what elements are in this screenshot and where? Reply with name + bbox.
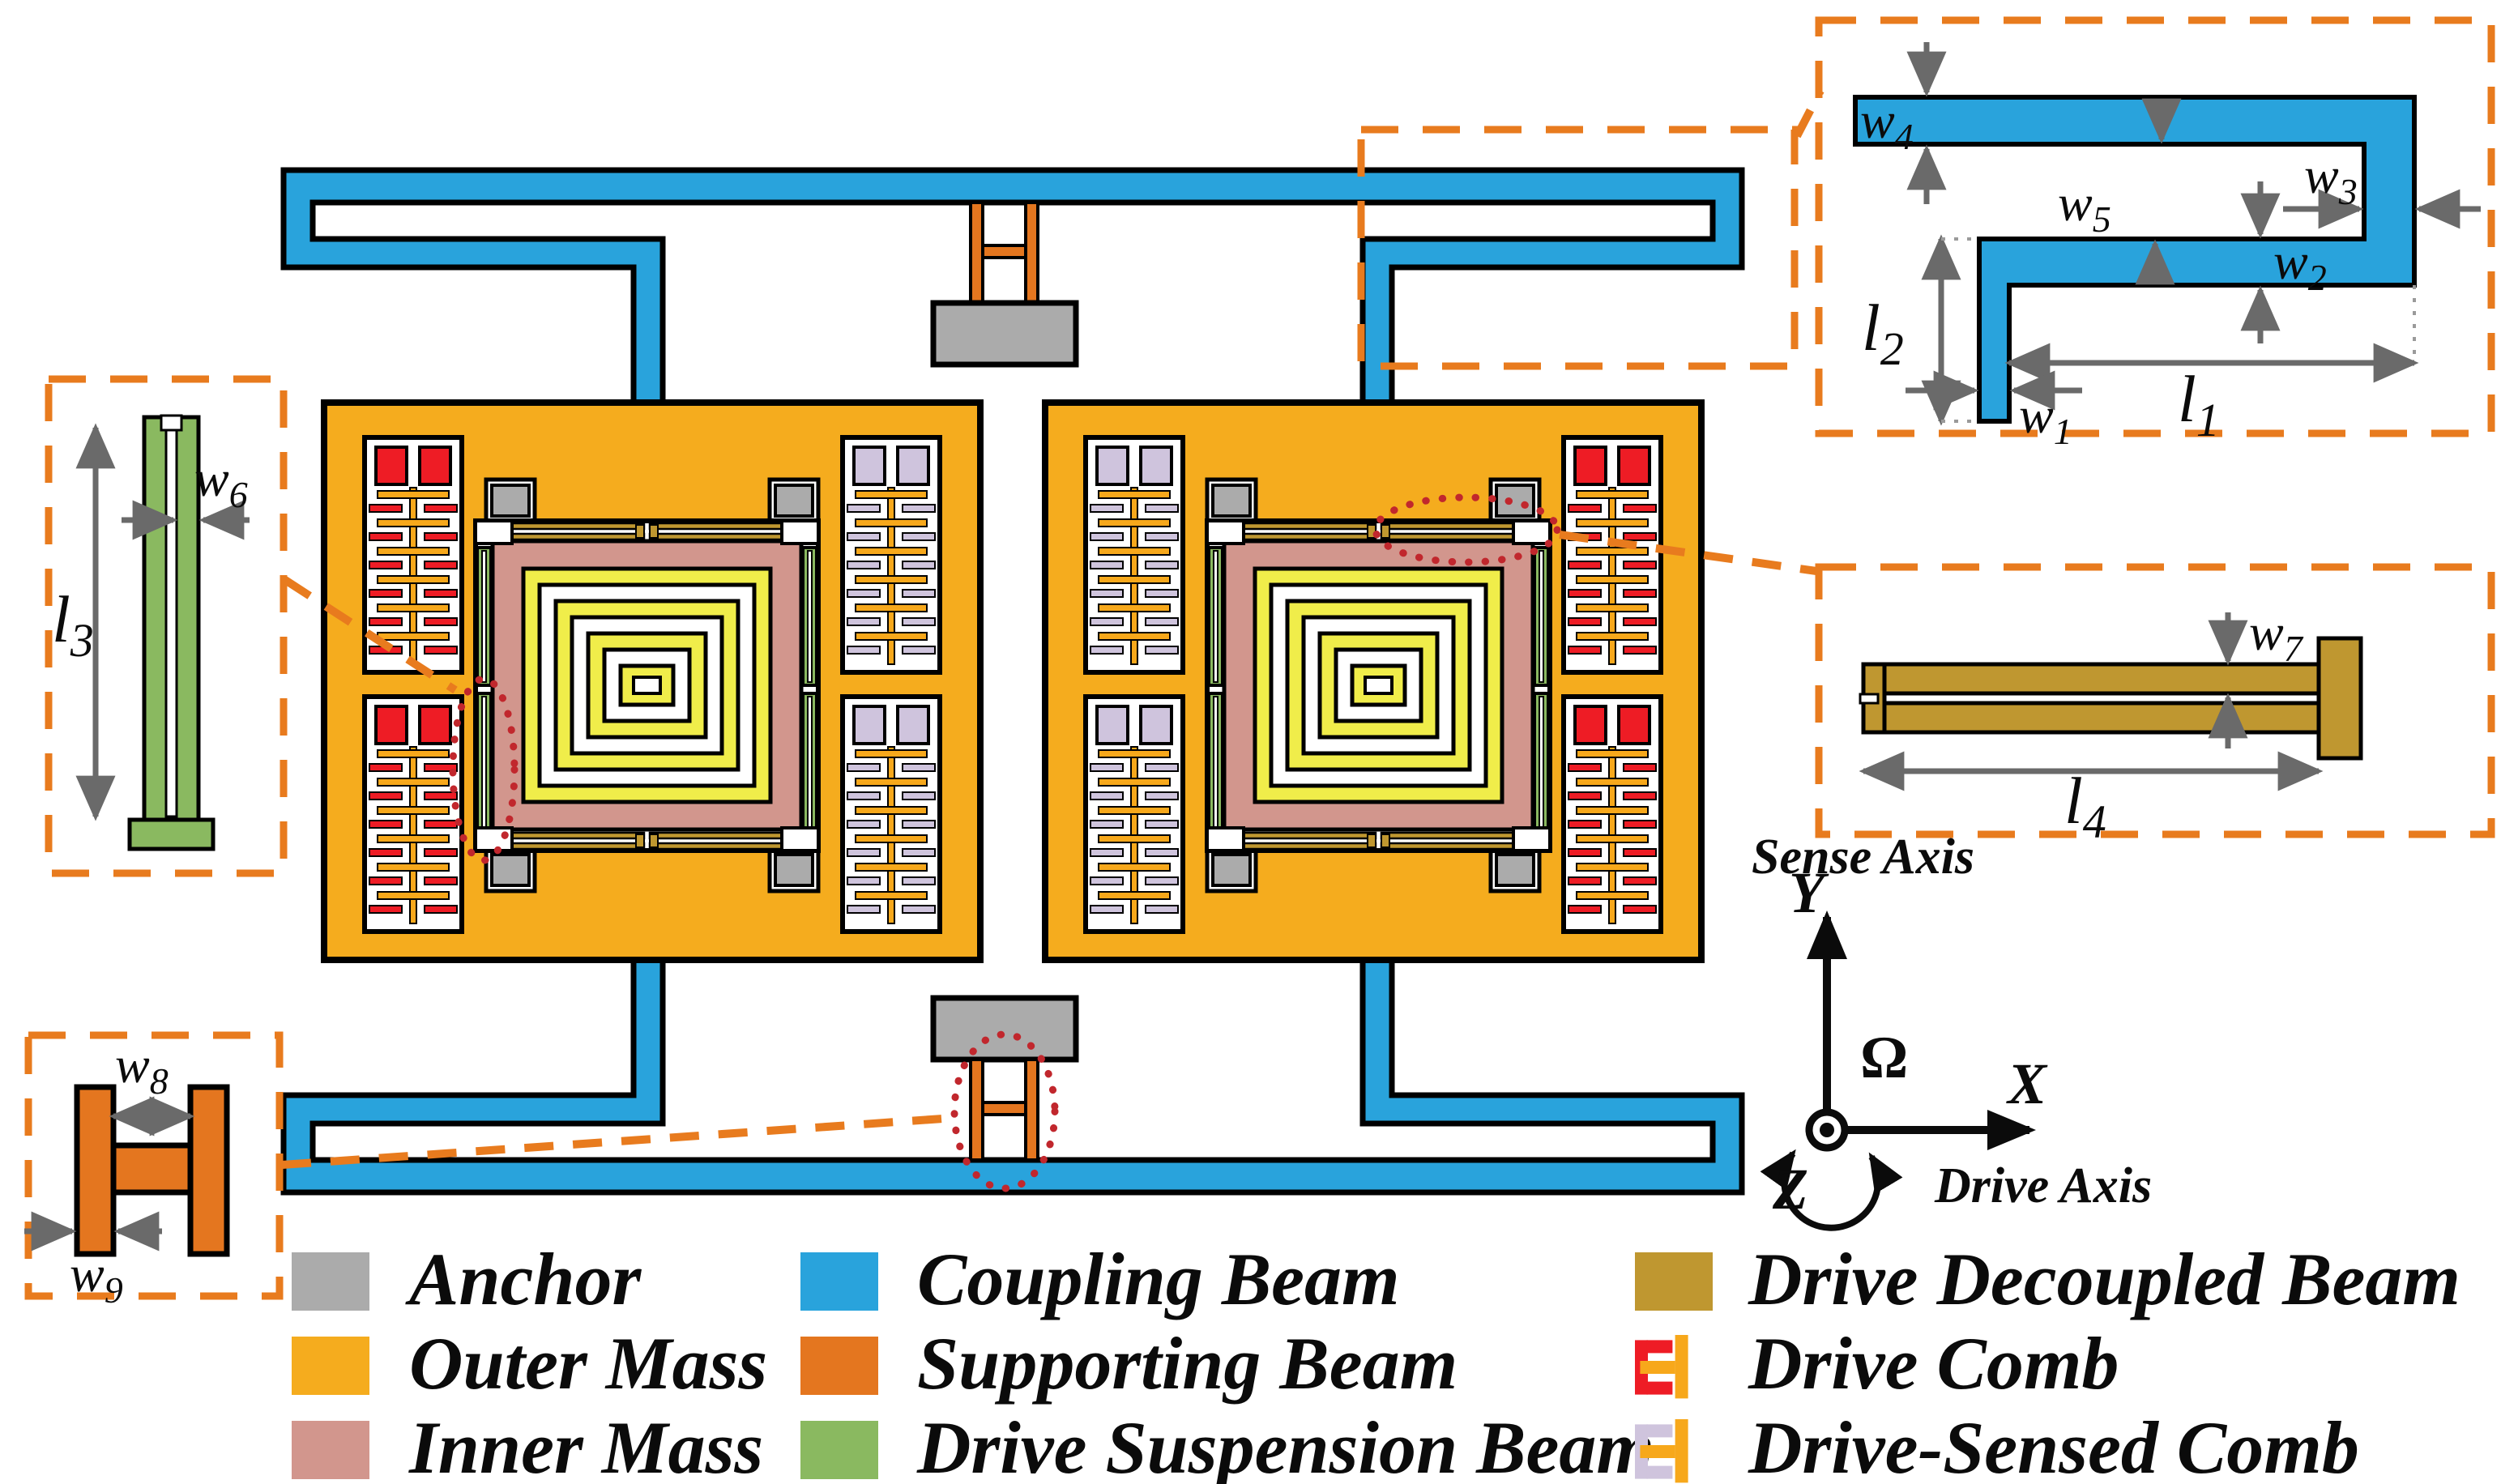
right-drive-comb-top <box>1564 437 1661 672</box>
legend-label-supporting-beam: Supporting Beam <box>917 1322 1457 1405</box>
legend-label-outer-mass: Outer Mass <box>409 1322 767 1405</box>
legend-label-inner-mass: Inner Mass <box>408 1406 763 1484</box>
dim-l4: l4 <box>2064 764 2106 848</box>
center-anchor-bottom <box>933 998 1076 1060</box>
center-anchor-top <box>933 303 1076 365</box>
anchor-tab <box>1207 849 1256 891</box>
legend-swatch-supporting-beam <box>800 1337 878 1395</box>
supporting-beam-bottom <box>933 998 1076 1160</box>
inset-box <box>1819 567 2491 834</box>
dim-w1: w1 <box>2019 386 2072 452</box>
legend-swatch-decoupled-beam <box>1635 1252 1713 1311</box>
dim-w3: w3 <box>2304 147 2358 212</box>
coupling-beam-bottom <box>284 960 1742 1192</box>
beam-notch <box>161 416 181 430</box>
y-axis-label: Y <box>1789 860 1829 925</box>
sense-axis-label: Sense Axis <box>1752 829 1974 885</box>
suspension-beam <box>1534 693 1548 831</box>
left-sensed-comb-bottom <box>843 697 940 932</box>
drive-axis-label: Drive Axis <box>1934 1158 2152 1213</box>
gyroscope-schematic: w4 w5 w2 w3 w1 l2 l1 w7 l4 <box>0 0 2501 1484</box>
legend-label-drive-sensed-comb: Drive-Sensed Comb <box>1748 1406 2359 1484</box>
dim-w8: w8 <box>115 1036 169 1102</box>
legend-swatch-suspension-beam <box>800 1421 878 1479</box>
legend-label-coupling-beam: Coupling Beam <box>917 1238 1400 1320</box>
omega-label: Ω <box>1860 1025 1908 1091</box>
anchor-tab <box>1207 480 1256 522</box>
inset-coupling-beam: w4 w5 w2 w3 w1 l2 l1 <box>1819 20 2491 452</box>
inset-decoupled-beam: w7 l4 <box>1819 567 2491 848</box>
legend-swatch-inner-mass <box>292 1421 369 1479</box>
dim-l1: l1 <box>2178 362 2220 446</box>
legend-icon-drive-sensed-comb <box>1635 1419 1688 1482</box>
right-sensed-comb-bottom <box>1086 697 1183 932</box>
legend-swatch-outer-mass <box>292 1337 369 1395</box>
legend-icon-drive-comb <box>1635 1335 1688 1398</box>
coordinate-axes: Sense Axis Y X Drive Axis Z Ω <box>1752 829 2152 1228</box>
inset-supporting-beam: w8 w9 <box>24 1035 280 1311</box>
legend: Anchor Outer Mass Inner Mass Coupling Be… <box>292 1238 2460 1484</box>
coupling-beam-bottom-shape <box>284 960 1742 1192</box>
dim-w5: w5 <box>2058 174 2111 240</box>
suspension-beam <box>477 693 491 831</box>
legend-swatch-coupling-beam <box>800 1252 878 1311</box>
legend-label-anchor: Anchor <box>405 1238 642 1320</box>
anchor-tab <box>770 480 818 522</box>
right-spring-rings <box>1255 569 1502 802</box>
anchor-tab <box>1491 849 1539 891</box>
right-sensed-comb-top <box>1086 437 1183 672</box>
suspension-beam <box>477 548 491 685</box>
suspension-beam <box>803 548 817 685</box>
z-axis-dot <box>1820 1123 1834 1137</box>
legend-label-suspension-beam: Drive Suspension Beam <box>916 1406 1654 1484</box>
anchor-tab <box>1491 480 1539 522</box>
dim-w7: w7 <box>2249 603 2304 669</box>
left-sensed-comb-top <box>843 437 940 672</box>
legend-label-decoupled-beam: Drive Decoupled Beam <box>1748 1238 2460 1320</box>
beam-notch <box>1860 694 1878 703</box>
supporting-h-bottom <box>971 1060 1038 1160</box>
dim-w6: w6 <box>194 450 248 515</box>
suspension-beam <box>803 693 817 831</box>
suspension-beam <box>1534 548 1548 685</box>
suspension-beam <box>1209 693 1223 831</box>
z-axis-label: Z <box>1772 1157 1808 1222</box>
supporting-beam-top <box>933 203 1076 365</box>
left-gyro-mass <box>324 403 980 960</box>
inset-suspension-beam: l3 w6 <box>49 379 284 873</box>
anchor-tab <box>770 849 818 891</box>
left-drive-comb-bottom <box>365 697 462 932</box>
suspension-beam <box>1209 548 1223 685</box>
legend-label-drive-comb: Drive Comb <box>1748 1322 2119 1405</box>
anchor-tab <box>486 480 535 522</box>
dim-l3: l3 <box>52 582 94 667</box>
right-drive-comb-bottom <box>1564 697 1661 932</box>
right-gyro-mass <box>1045 403 1701 960</box>
supporting-h-top <box>971 203 1038 303</box>
x-axis-label: X <box>2006 1051 2048 1116</box>
dim-l2: l2 <box>1862 291 1904 375</box>
anchor-tab <box>486 849 535 891</box>
left-spring-rings <box>523 569 770 802</box>
legend-swatch-anchor <box>292 1252 369 1311</box>
